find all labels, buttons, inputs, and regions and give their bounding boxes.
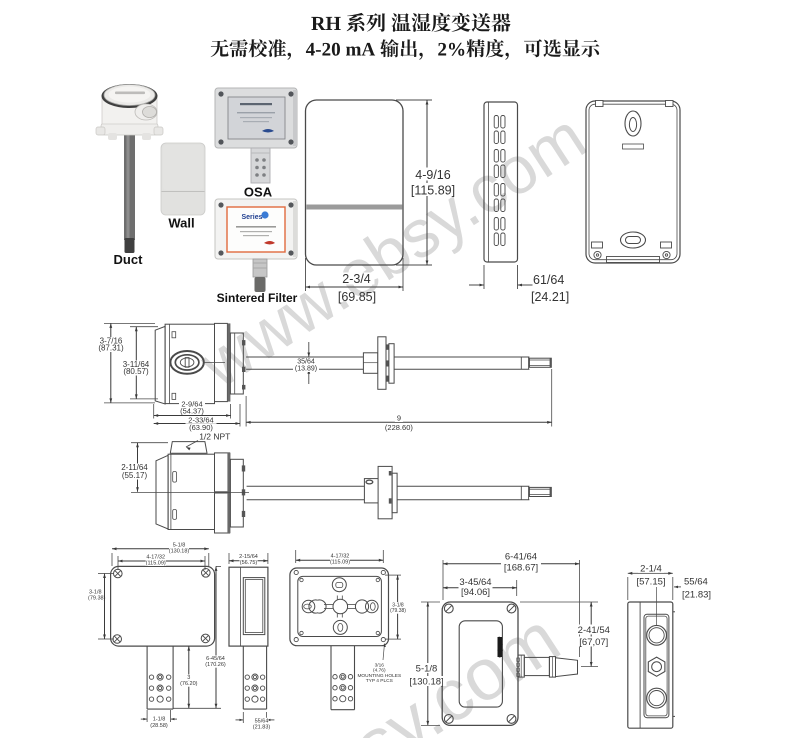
svg-text:(170.26): (170.26) <box>205 662 226 668</box>
svg-text:(4.76): (4.76) <box>373 668 386 674</box>
svg-text:[69.85]: [69.85] <box>338 290 376 304</box>
svg-text:(55.17): (55.17) <box>122 471 148 480</box>
svg-text:(56.75): (56.75) <box>240 560 258 566</box>
svg-text:TYP 4 PLCS: TYP 4 PLCS <box>366 678 393 684</box>
svg-text:5-1/8: 5-1/8 <box>416 664 438 675</box>
svg-text:(28.58): (28.58) <box>150 723 168 729</box>
svg-text:(115.09): (115.09) <box>330 560 350 566</box>
svg-text:[130.18]: [130.18] <box>409 677 443 688</box>
svg-text:4-17/32: 4-17/32 <box>331 554 350 560</box>
svg-text:(228.60): (228.60) <box>385 423 413 432</box>
svg-text:[115.89]: [115.89] <box>411 184 455 198</box>
svg-text:Series: Series <box>241 214 262 221</box>
svg-text:[24.21]: [24.21] <box>531 290 569 304</box>
svg-text:2-15/64: 2-15/64 <box>239 554 258 560</box>
svg-text:5-1/8: 5-1/8 <box>173 542 186 548</box>
svg-text:2-1/4: 2-1/4 <box>640 563 662 574</box>
svg-text:[94.06]: [94.06] <box>461 587 490 598</box>
svg-text:4-9/16: 4-9/16 <box>415 168 450 182</box>
svg-text:1/2 NPT: 1/2 NPT <box>199 432 230 442</box>
svg-text:6-41/64: 6-41/64 <box>505 551 537 562</box>
svg-text:(79.38): (79.38) <box>390 608 406 614</box>
svg-text:55/64: 55/64 <box>255 718 269 724</box>
svg-text:[21.83]: [21.83] <box>682 589 711 600</box>
svg-text:6-45/64: 6-45/64 <box>206 656 225 662</box>
svg-text:(13.89): (13.89) <box>295 366 317 373</box>
svg-text:9: 9 <box>397 414 401 423</box>
svg-text:Duct: Duct <box>114 252 144 267</box>
svg-text:2-3/4: 2-3/4 <box>342 272 371 286</box>
svg-text:1-1/8: 1-1/8 <box>153 717 166 723</box>
svg-text:OSA: OSA <box>244 185 273 200</box>
svg-text:3: 3 <box>187 675 190 681</box>
svg-text:(130.18): (130.18) <box>169 549 190 555</box>
svg-text:(115.09): (115.09) <box>146 561 166 567</box>
svg-text:(21.83): (21.83) <box>253 725 271 731</box>
svg-text:(54.37): (54.37) <box>180 407 204 416</box>
svg-text:Sintered Filter: Sintered Filter <box>217 291 298 305</box>
svg-text:2-41/54: 2-41/54 <box>578 625 610 636</box>
svg-text:4-17/32: 4-17/32 <box>146 554 165 560</box>
svg-text:35/64: 35/64 <box>297 359 315 366</box>
svg-text:(80.57): (80.57) <box>123 367 149 376</box>
svg-text:Wall: Wall <box>168 216 194 231</box>
svg-text:61/64: 61/64 <box>533 273 564 287</box>
svg-text:[67,07]: [67,07] <box>579 637 608 648</box>
svg-text:55/64: 55/64 <box>684 576 708 587</box>
svg-text:(87.31): (87.31) <box>98 344 124 353</box>
svg-text:[57.15]: [57.15] <box>636 576 665 587</box>
svg-text:MOUNTING HOLES: MOUNTING HOLES <box>357 673 401 679</box>
svg-text:(76.20): (76.20) <box>180 681 198 687</box>
svg-text:[168.67]: [168.67] <box>504 563 538 574</box>
svg-text:(79.38): (79.38) <box>88 596 106 602</box>
svg-text:3/16: 3/16 <box>375 663 385 669</box>
